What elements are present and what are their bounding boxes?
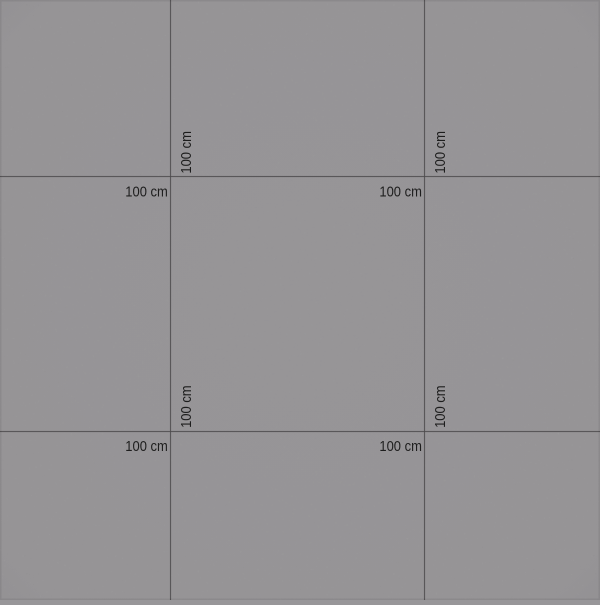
svg-text:100 cm: 100 cm [179,385,195,428]
svg-text:100 cm: 100 cm [379,439,422,455]
svg-text:100 cm: 100 cm [125,439,168,455]
svg-text:100 cm: 100 cm [433,131,449,174]
svg-text:100 cm: 100 cm [379,184,422,200]
svg-text:100 cm: 100 cm [179,131,195,174]
svg-text:100 cm: 100 cm [125,184,168,200]
svg-text:100 cm: 100 cm [433,385,449,428]
